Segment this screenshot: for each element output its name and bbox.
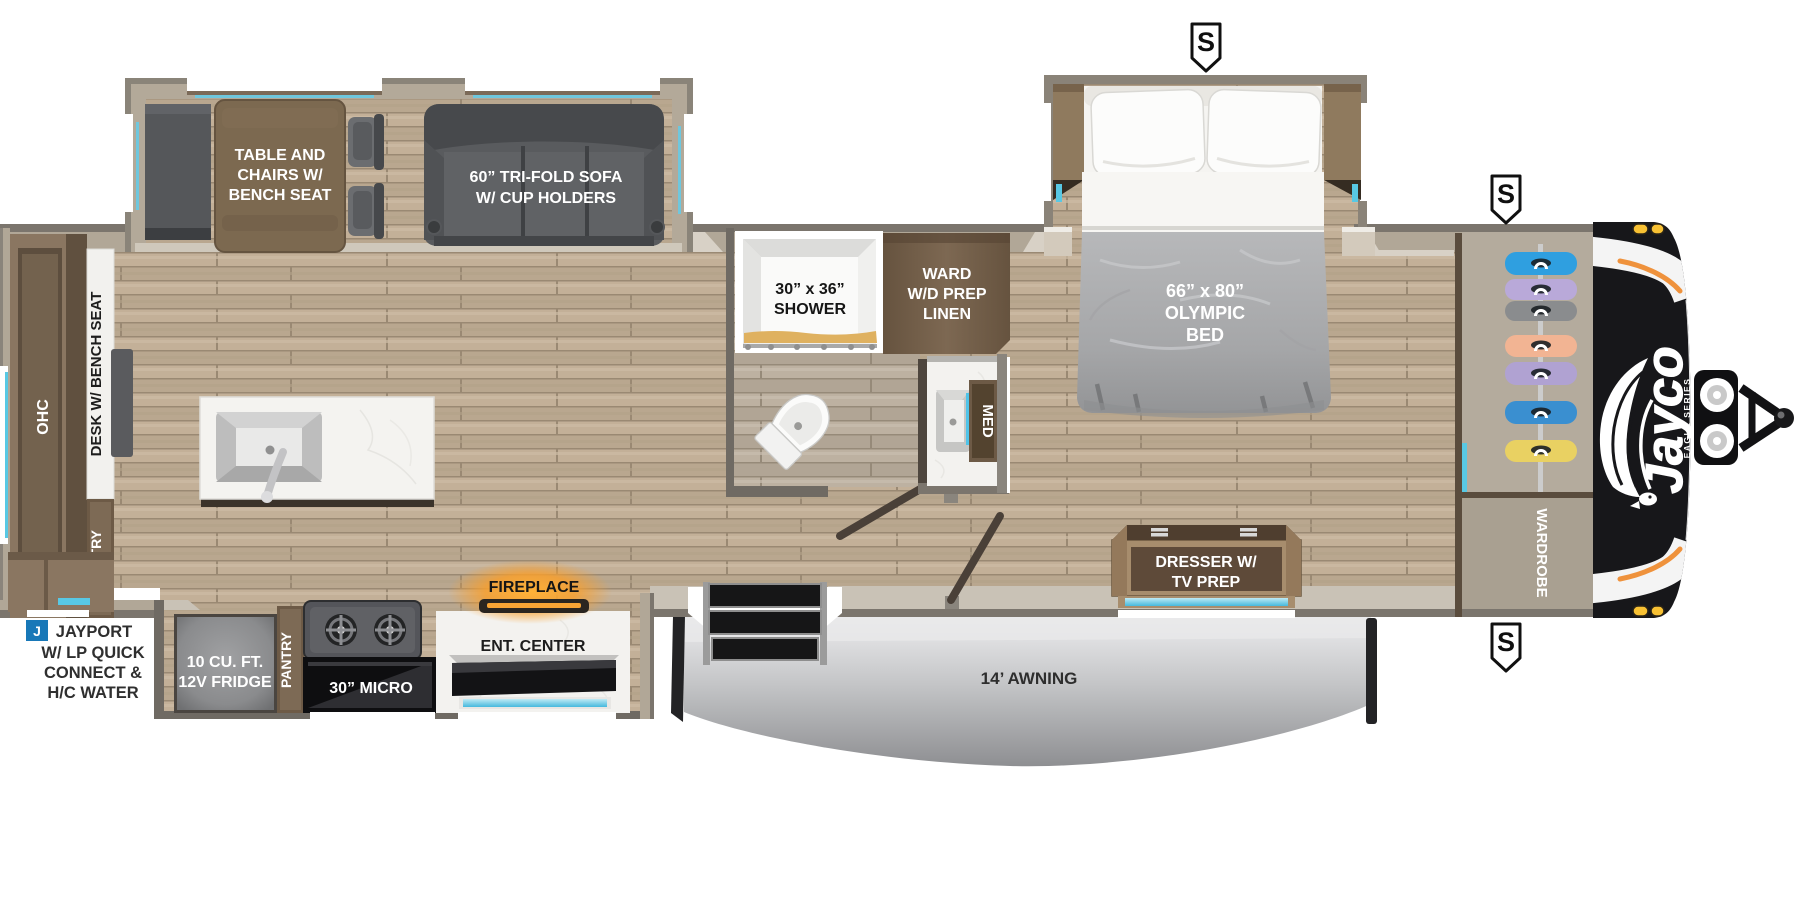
svg-text:SHOWER: SHOWER xyxy=(774,301,846,318)
svg-text:OLYMPIC: OLYMPIC xyxy=(1165,303,1245,323)
svg-text:30” x 36”: 30” x 36” xyxy=(775,281,844,298)
svg-text:DESK W/ BENCH SEAT: DESK W/ BENCH SEAT xyxy=(88,292,105,457)
svg-text:H/C WATER: H/C WATER xyxy=(47,684,138,702)
svg-text:BED: BED xyxy=(1186,325,1224,345)
svg-text:TV PREP: TV PREP xyxy=(1172,574,1241,591)
svg-text:30” MICRO: 30” MICRO xyxy=(329,680,413,697)
svg-text:10 CU. FT.: 10 CU. FT. xyxy=(187,654,263,671)
svg-text:S: S xyxy=(1497,627,1515,657)
svg-text:ENT. CENTER: ENT. CENTER xyxy=(481,638,586,655)
svg-text:S: S xyxy=(1497,179,1515,209)
svg-text:14’ AWNING: 14’ AWNING xyxy=(981,669,1078,688)
svg-text:JAYPORT: JAYPORT xyxy=(56,623,132,641)
svg-text:12V FRIDGE: 12V FRIDGE xyxy=(178,674,272,691)
svg-text:W/ LP QUICK: W/ LP QUICK xyxy=(41,644,144,662)
svg-text:EAGLE SERIES: EAGLE SERIES xyxy=(1682,378,1692,459)
svg-text:DRESSER W/: DRESSER W/ xyxy=(1155,554,1257,571)
svg-text:66” x 80”: 66” x 80” xyxy=(1166,281,1244,301)
svg-text:CONNECT &: CONNECT & xyxy=(44,664,142,682)
svg-text:BENCH SEAT: BENCH SEAT xyxy=(229,187,332,204)
svg-text:S: S xyxy=(1197,27,1215,57)
svg-text:J: J xyxy=(33,623,41,639)
svg-text:FIREPLACE: FIREPLACE xyxy=(489,579,580,596)
svg-text:WARDROBE: WARDROBE xyxy=(1533,508,1550,597)
svg-text:PANTRY: PANTRY xyxy=(278,631,294,688)
svg-text:LINEN: LINEN xyxy=(923,306,971,323)
svg-text:CHAIRS W/: CHAIRS W/ xyxy=(237,167,323,184)
svg-text:OHC: OHC xyxy=(35,399,52,435)
svg-text:WARD: WARD xyxy=(923,266,972,283)
svg-text:60” TRI-FOLD SOFA: 60” TRI-FOLD SOFA xyxy=(470,169,623,186)
svg-text:TABLE AND: TABLE AND xyxy=(235,147,326,164)
svg-text:W/ CUP HOLDERS: W/ CUP HOLDERS xyxy=(476,190,616,207)
svg-text:MED: MED xyxy=(979,404,996,438)
svg-text:W/D PREP: W/D PREP xyxy=(907,286,986,303)
